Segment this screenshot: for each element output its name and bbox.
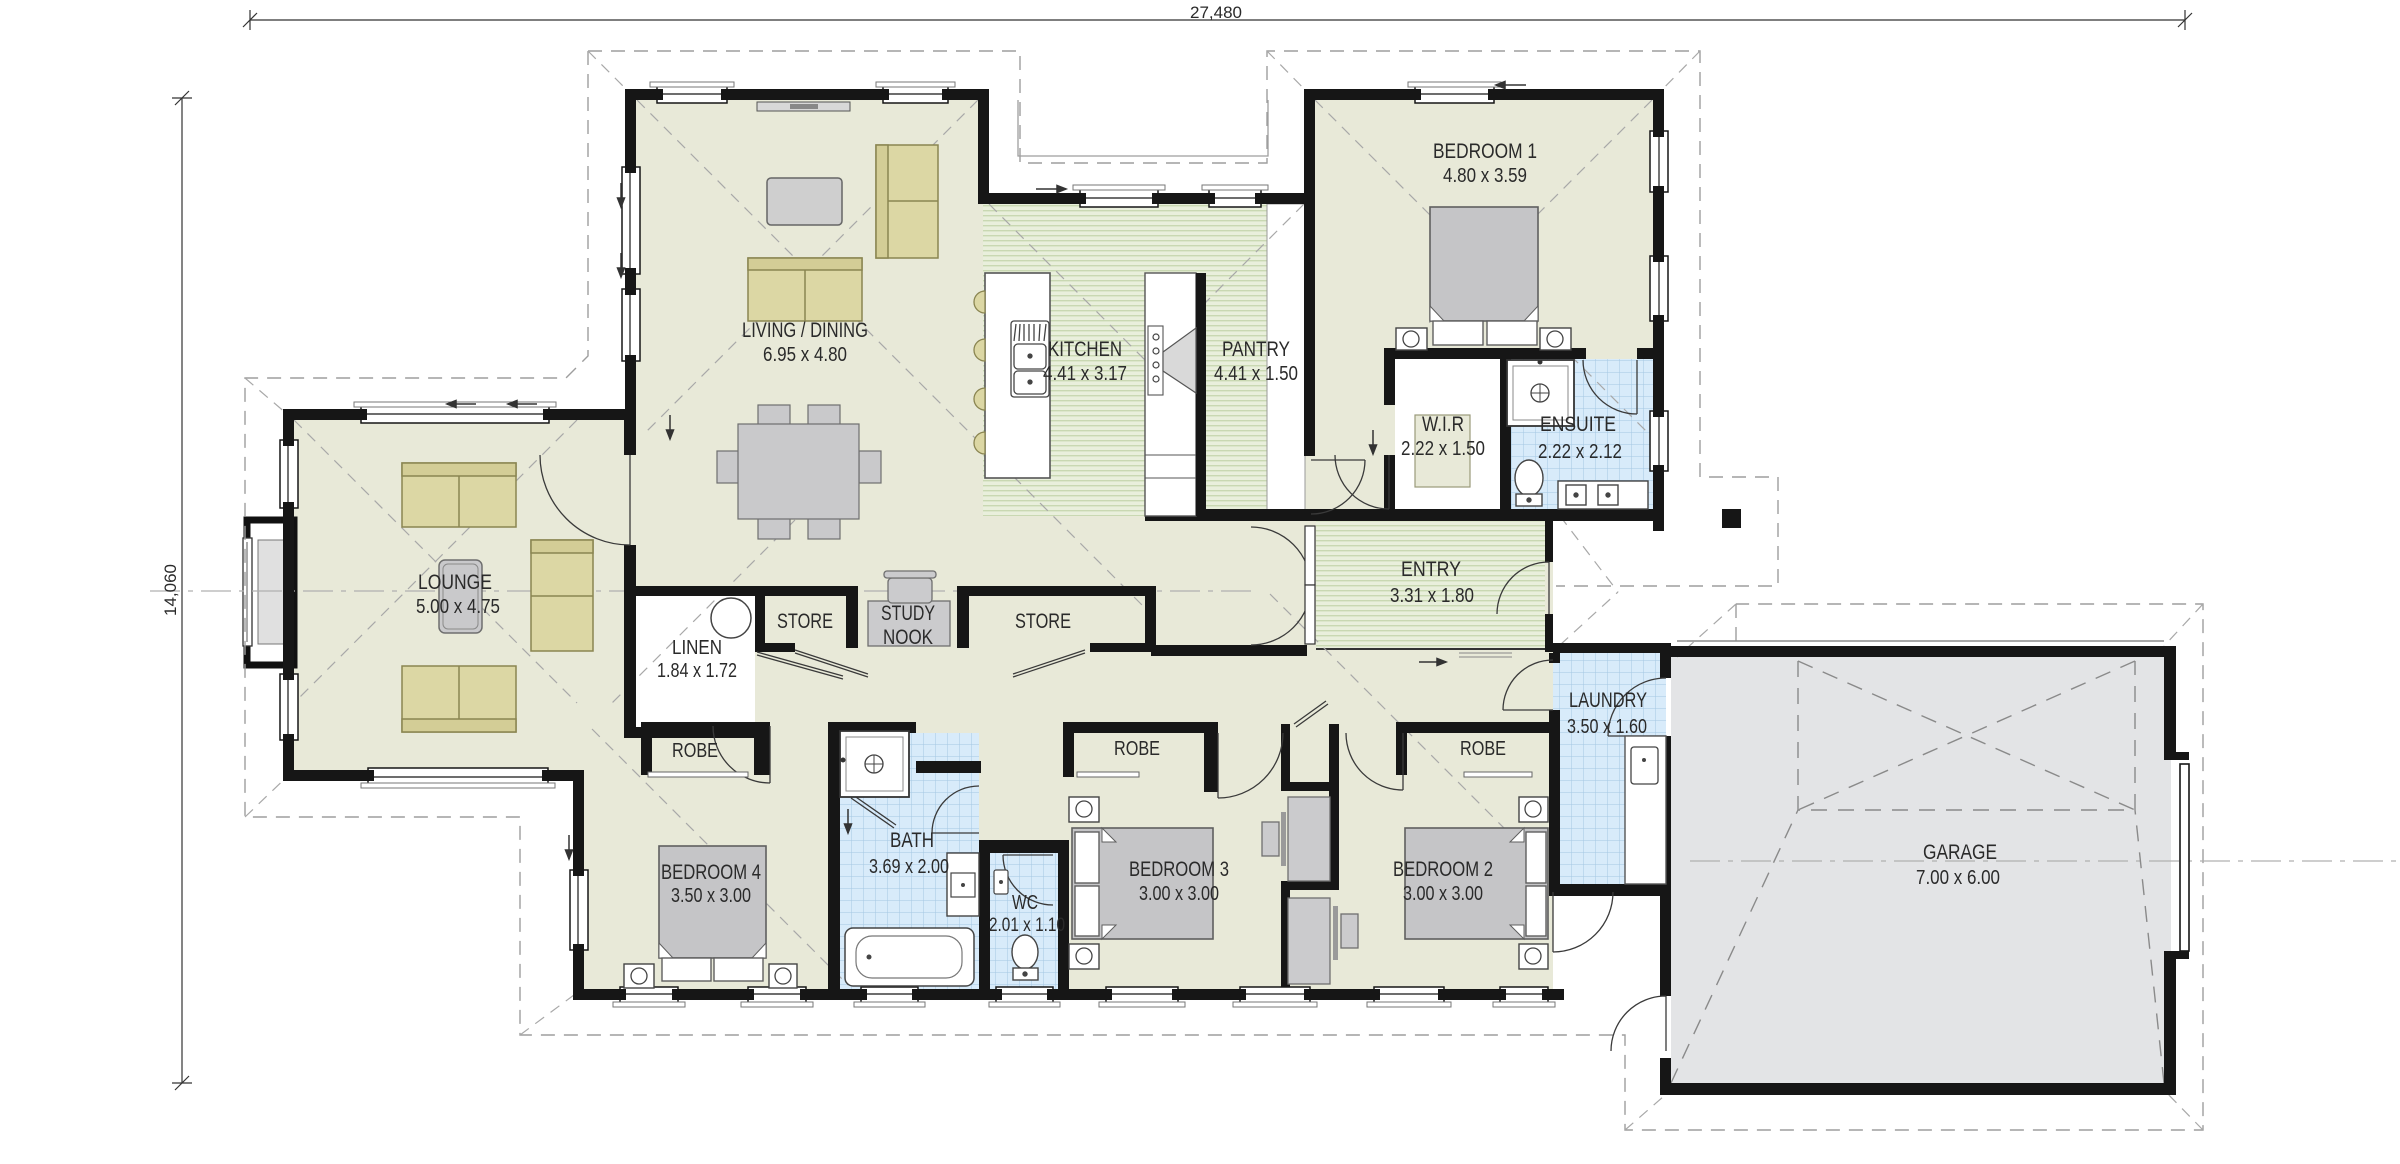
svg-text:3.00 x 3.00: 3.00 x 3.00 bbox=[1403, 883, 1483, 905]
svg-text:STORE: STORE bbox=[777, 610, 833, 633]
svg-text:LIVING / DINING: LIVING / DINING bbox=[742, 319, 868, 342]
svg-text:W.I.R: W.I.R bbox=[1422, 413, 1464, 436]
svg-text:ROBE: ROBE bbox=[672, 740, 718, 762]
svg-text:GARAGE: GARAGE bbox=[1923, 841, 1997, 864]
svg-text:STORE: STORE bbox=[1015, 610, 1071, 633]
svg-text:LINEN: LINEN bbox=[672, 637, 722, 659]
svg-text:LOUNGE: LOUNGE bbox=[418, 571, 492, 594]
svg-text:PANTRY: PANTRY bbox=[1222, 338, 1290, 361]
svg-text:ENTRY: ENTRY bbox=[1401, 558, 1461, 581]
svg-text:BEDROOM 4: BEDROOM 4 bbox=[661, 861, 761, 884]
svg-text:3.50 x 3.00: 3.50 x 3.00 bbox=[671, 885, 751, 907]
svg-text:4.41 x 1.50: 4.41 x 1.50 bbox=[1214, 363, 1298, 385]
svg-text:2.22 x 1.50: 2.22 x 1.50 bbox=[1401, 438, 1485, 460]
svg-text:2.01 x 1.10: 2.01 x 1.10 bbox=[989, 915, 1065, 936]
svg-text:2.22 x 2.12: 2.22 x 2.12 bbox=[1538, 441, 1622, 463]
svg-text:LAUNDRY: LAUNDRY bbox=[1569, 689, 1647, 712]
svg-text:3.50 x 1.60: 3.50 x 1.60 bbox=[1567, 716, 1647, 738]
svg-text:KITCHEN: KITCHEN bbox=[1048, 338, 1122, 361]
svg-text:STUDY: STUDY bbox=[881, 602, 935, 625]
svg-text:3.31 x 1.80: 3.31 x 1.80 bbox=[1390, 585, 1474, 607]
svg-text:7.00 x 6.00: 7.00 x 6.00 bbox=[1916, 867, 2000, 889]
svg-text:4.41 x 3.17: 4.41 x 3.17 bbox=[1043, 363, 1127, 385]
svg-text:4.80 x 3.59: 4.80 x 3.59 bbox=[1443, 165, 1527, 187]
svg-text:27,480: 27,480 bbox=[1190, 3, 1242, 22]
svg-text:3.69 x 2.00: 3.69 x 2.00 bbox=[869, 856, 949, 878]
svg-text:BATH: BATH bbox=[890, 829, 934, 852]
svg-text:BEDROOM 2: BEDROOM 2 bbox=[1393, 858, 1493, 881]
svg-text:1.84 x 1.72: 1.84 x 1.72 bbox=[657, 660, 737, 682]
svg-text:6.95 x 4.80: 6.95 x 4.80 bbox=[763, 344, 847, 366]
svg-text:NOOK: NOOK bbox=[883, 626, 933, 649]
svg-text:BEDROOM 3: BEDROOM 3 bbox=[1129, 858, 1229, 881]
svg-text:ROBE: ROBE bbox=[1114, 738, 1160, 760]
svg-text:ROBE: ROBE bbox=[1460, 738, 1506, 760]
svg-text:5.00 x 4.75: 5.00 x 4.75 bbox=[416, 596, 500, 618]
svg-text:WC: WC bbox=[1012, 892, 1038, 914]
svg-text:3.00 x 3.00: 3.00 x 3.00 bbox=[1139, 883, 1219, 905]
svg-text:ENSUITE: ENSUITE bbox=[1540, 413, 1616, 436]
svg-text:14,060: 14,060 bbox=[161, 564, 180, 616]
svg-text:BEDROOM 1: BEDROOM 1 bbox=[1433, 140, 1537, 163]
